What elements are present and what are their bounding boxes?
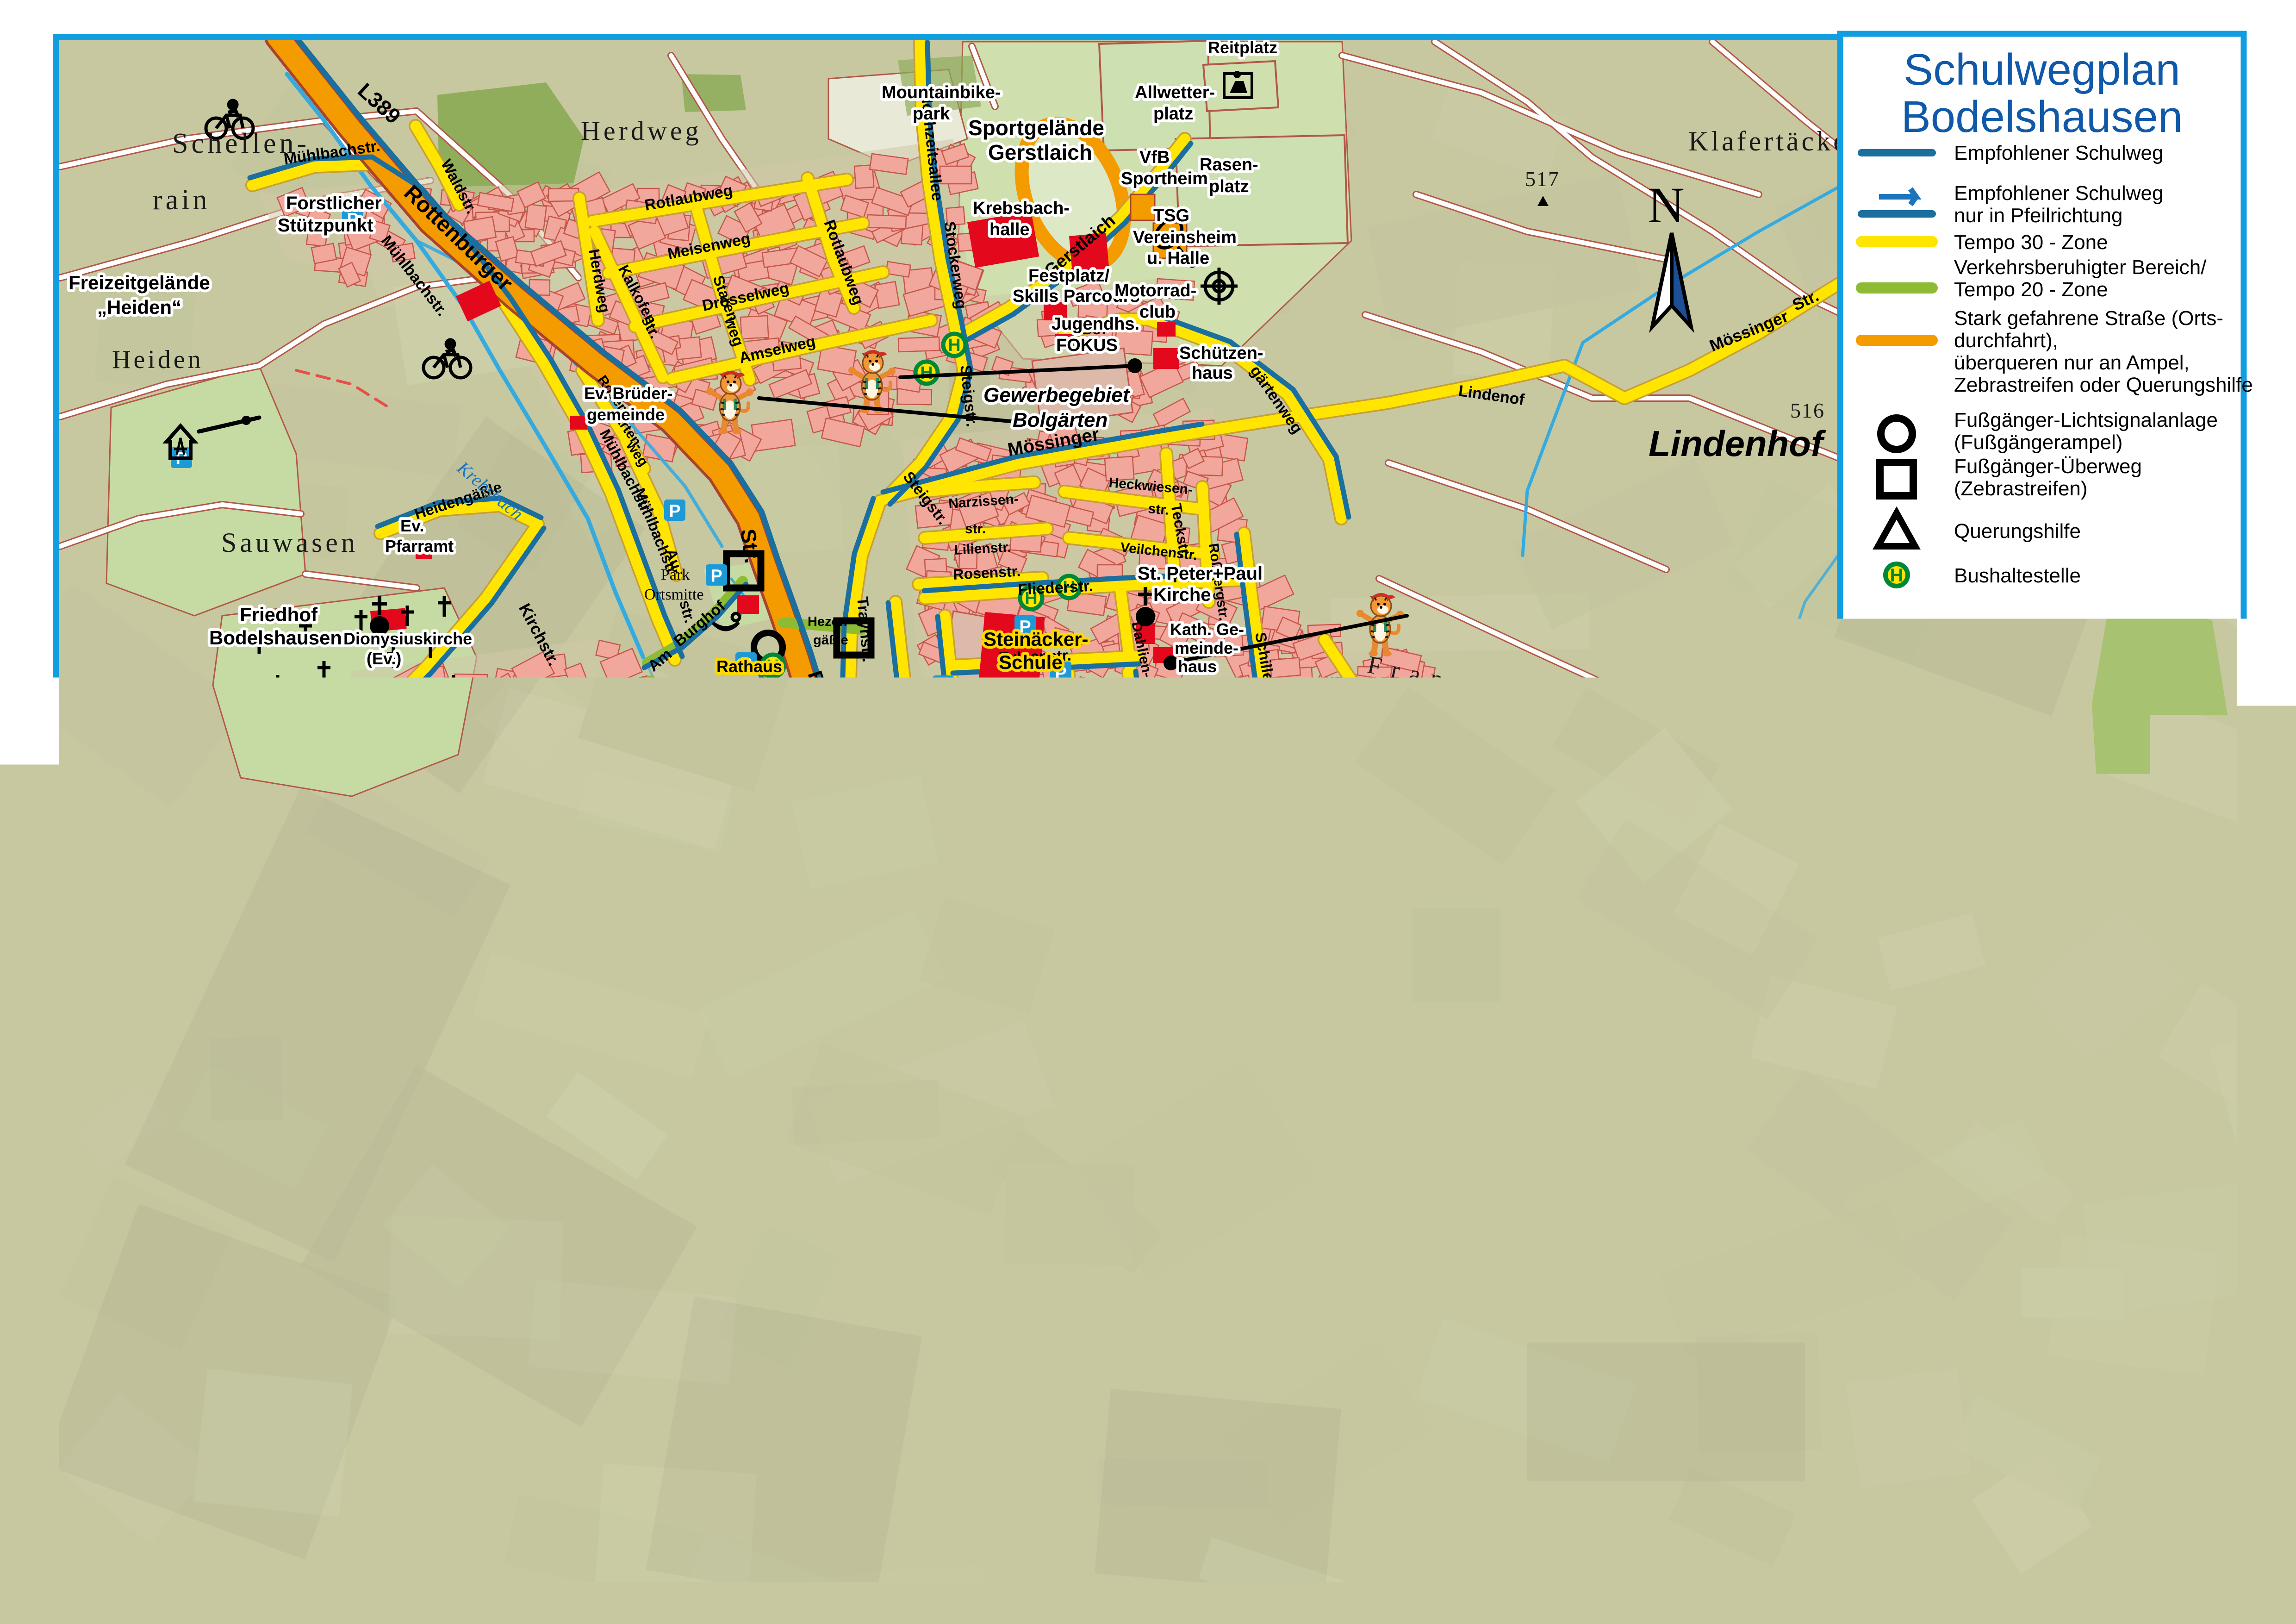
svg-text:Bolgärten: Bolgärten — [1013, 409, 1108, 431]
svg-text:517: 517 — [1525, 167, 1560, 191]
svg-text:Ortsmitte: Ortsmitte — [644, 586, 703, 603]
svg-text:Seelosen: Seelosen — [1579, 1433, 1668, 1456]
svg-text:Geißhalden: Geißhalden — [1628, 988, 1767, 1016]
svg-text:TSG: TSG — [1153, 206, 1189, 225]
svg-text:überqueren nur an Ampel,: überqueren nur an Ampel, — [1954, 351, 2190, 374]
svg-text:Lilienstr.: Lilienstr. — [954, 540, 1012, 558]
svg-text:meinde-: meinde- — [1175, 638, 1238, 657]
svg-text:VfB: VfB — [1139, 148, 1170, 167]
svg-text:haus: haus — [456, 874, 497, 894]
svg-text:Steinäcker-: Steinäcker- — [983, 628, 1088, 650]
svg-text:Stark gefahrene Straße (Orts-: Stark gefahrene Straße (Orts- — [1954, 307, 2223, 330]
svg-text:Musikverein: Musikverein — [890, 754, 992, 774]
svg-text:St. Peter+Paul: St. Peter+Paul — [1138, 563, 1263, 584]
svg-text:Rathaus: Rathaus — [570, 737, 636, 756]
svg-text:„Heiden“: „Heiden“ — [97, 296, 181, 318]
svg-text:Schulwegplan: Schulwegplan — [1904, 45, 2180, 94]
svg-text:Empfohlener Schulweg: Empfohlener Schulweg — [1954, 182, 2163, 205]
svg-text:H: H — [716, 687, 728, 707]
svg-text:Freizeitgelände: Freizeitgelände — [68, 272, 210, 294]
svg-text:Jugendhs.: Jugendhs. — [1052, 314, 1139, 334]
svg-text:H: H — [601, 1355, 613, 1375]
svg-text:Trayhstr.: Trayhstr. — [852, 721, 873, 788]
svg-text:P: P — [1124, 707, 1136, 726]
svg-text:Gemein-: Gemein- — [780, 816, 846, 835]
svg-text:BODELSHAUSEN: BODELSHAUSEN — [1333, 716, 1947, 797]
svg-text:Forstlicher: Forstlicher — [286, 193, 382, 213]
svg-text:halle: halle — [237, 812, 275, 831]
svg-text:wehr: wehr — [843, 1222, 882, 1241]
svg-text:Klafertäcker: Klafertäcker — [1688, 126, 1860, 156]
svg-text:(Ev.-Method.): (Ev.-Method.) — [633, 1208, 743, 1227]
svg-text:Freiw.: Freiw. — [841, 1181, 889, 1200]
svg-text:Heimatgeschichtl.: Heimatgeschichtl. — [1375, 1146, 1526, 1165]
svg-text:P: P — [1010, 736, 1022, 756]
svg-text:Fußgänger-Überweg: Fußgänger-Überweg — [1954, 455, 2142, 478]
svg-text:Rasen-: Rasen- — [1200, 155, 1258, 175]
svg-text:Bodelshausen: Bodelshausen — [1901, 92, 2183, 142]
svg-text:Sauwasen: Sauwasen — [221, 527, 358, 558]
svg-text:H: H — [948, 336, 960, 355]
svg-text:Nelkenstr.: Nelkenstr. — [1008, 705, 1082, 725]
svg-text:str.: str. — [965, 521, 986, 537]
svg-text:str.: str. — [1147, 501, 1170, 518]
svg-text:Linke Au: Linke Au — [513, 706, 653, 739]
svg-text:Birkenweg: Birkenweg — [715, 1104, 804, 1124]
svg-text:P: P — [2198, 1307, 2209, 1327]
svg-text:Friedenskirche: Friedenskirche — [626, 1187, 751, 1207]
svg-text:Hartwiesen: Hartwiesen — [1662, 828, 1808, 857]
svg-text:Gewerbe-: Gewerbe- — [1954, 1517, 2042, 1539]
svg-text:Gerstlaich: Gerstlaich — [988, 140, 1092, 164]
svg-text:Hirschen: Hirschen — [326, 1236, 449, 1266]
svg-text:(Ev.): (Ev.) — [367, 649, 401, 668]
svg-text:Vereinsheim: Vereinsheim — [1133, 228, 1237, 247]
svg-text:DRK: DRK — [906, 1225, 946, 1246]
svg-text:gebiet: gebiet — [1972, 1542, 2031, 1563]
svg-text:durchfahrt),: durchfahrt), — [1954, 329, 2058, 352]
svg-text:Schellen-: Schellen- — [172, 128, 310, 159]
svg-text:Wohnhaus für: Wohnhaus für — [522, 1104, 640, 1124]
svg-text:i: i — [1984, 1154, 1990, 1178]
svg-text:Tempo 20 - Zone: Tempo 20 - Zone — [1954, 278, 2108, 301]
svg-text:Kiga: Kiga — [1255, 1111, 1292, 1130]
svg-text:Bodelshausen: Bodelshausen — [209, 627, 342, 649]
svg-text:(Zebrastreifen): (Zebrastreifen) — [1954, 477, 2088, 500]
svg-text:Ev.: Ev. — [400, 516, 424, 535]
svg-text:Gewerbegebiet: Gewerbegebiet — [983, 384, 1131, 406]
svg-text:Senioren-: Senioren- — [443, 854, 524, 874]
svg-text:Sportheim: Sportheim — [1121, 169, 1208, 188]
svg-text:Bahnh.: Bahnh. — [2175, 1343, 2228, 1361]
svg-text:N: N — [1648, 177, 1684, 233]
svg-text:Empfohlener Schulweg: Empfohlener Schulweg — [1954, 142, 2163, 164]
svg-text:Kath. Ge-: Kath. Ge- — [1170, 620, 1244, 639]
svg-text:Herdweg: Herdweg — [581, 116, 702, 146]
svg-text:H: H — [1890, 565, 1904, 586]
svg-text:Festplatz/: Festplatz/ — [1028, 266, 1110, 286]
svg-text:club: club — [1139, 302, 1176, 322]
svg-text:hofstr.: hofstr. — [1252, 1150, 1303, 1169]
svg-text:Behinderte: Behinderte — [533, 1124, 625, 1144]
svg-text:Bahn-: Bahn- — [1251, 1131, 1298, 1149]
svg-text:Park: Park — [661, 566, 690, 583]
svg-text:P: P — [669, 502, 680, 521]
svg-text:haus: haus — [1178, 657, 1217, 676]
svg-text:wiese: wiese — [1806, 1166, 1859, 1189]
svg-text:str.: str. — [1154, 880, 1173, 905]
svg-text:516: 516 — [1790, 399, 1825, 422]
svg-text:Allwetter-: Allwetter- — [1135, 83, 1215, 102]
svg-text:L389: L389 — [1523, 1274, 1570, 1299]
svg-text:H: H — [1053, 990, 1066, 1009]
svg-text:Bodels-: Bodels- — [2170, 1363, 2228, 1381]
svg-text:bühl: bühl — [1032, 1338, 1062, 1354]
svg-text:H: H — [654, 885, 667, 905]
svg-text:P: P — [710, 567, 722, 586]
svg-text:Friedrich-: Friedrich- — [1829, 1256, 1895, 1273]
svg-text:Bushaltestelle: Bushaltestelle — [1954, 564, 2081, 587]
svg-text:Fußgänger-Lichtsignalanlage: Fußgänger-Lichtsignalanlage — [1954, 409, 2218, 431]
svg-text:str.: str. — [979, 895, 998, 920]
svg-text:Stützpunkt: Stützpunkt — [278, 215, 373, 236]
svg-text:Rosenstr.: Rosenstr. — [952, 562, 1021, 583]
svg-text:Heiden: Heiden — [112, 345, 204, 374]
svg-text:Forum: Forum — [759, 750, 814, 769]
svg-text:Butzensee: Butzensee — [2133, 1200, 2210, 1221]
svg-text:KBF: KBF — [570, 1083, 606, 1102]
svg-text:Blochings-: Blochings- — [209, 1026, 355, 1056]
svg-text:P: P — [2226, 1252, 2237, 1271]
svg-text:Ev. Brüder-: Ev. Brüder- — [584, 384, 672, 403]
svg-text:Friedhof: Friedhof — [240, 604, 318, 625]
svg-text:Zebrastreifen oder Querungshil: Zebrastreifen oder Querungshilfe — [1954, 374, 2253, 396]
svg-text:Kirche: Kirche — [1153, 585, 1211, 605]
svg-text:P: P — [635, 1543, 647, 1563]
svg-text:Kindergarten: Kindergarten — [1235, 777, 1338, 796]
svg-text:Lindenhof: Lindenhof — [1649, 423, 1826, 464]
svg-text:Schule: Schule — [999, 651, 1063, 673]
svg-text:Str.: Str. — [736, 527, 765, 565]
svg-text:platz: platz — [1209, 177, 1249, 196]
svg-text:park: park — [913, 104, 950, 124]
svg-text:P: P — [876, 710, 887, 730]
svg-text:Querungshilfe: Querungshilfe — [1954, 520, 2081, 543]
svg-text:Hezen-: Hezen- — [808, 614, 852, 629]
svg-text:(Fußgängerampel): (Fußgängerampel) — [1954, 431, 2122, 454]
svg-text:nur in Pfeilrichtung: nur in Pfeilrichtung — [1954, 204, 2122, 227]
svg-text:Feuer-: Feuer- — [835, 1201, 886, 1220]
svg-text:Sportgelände: Sportgelände — [968, 116, 1104, 140]
svg-text:Reitplatz: Reitplatz — [1208, 38, 1277, 57]
svg-text:Dörnlestr.: Dörnlestr. — [465, 1341, 532, 1357]
svg-text:u. Halle: u. Halle — [1147, 249, 1209, 268]
svg-text:FOKUS: FOKUS — [1056, 336, 1118, 355]
svg-text:Bei der: Bei der — [1790, 1114, 1859, 1137]
svg-text:H: H — [1358, 1206, 1370, 1225]
svg-text:P: P — [937, 678, 949, 697]
svg-text:Schäfer: Schäfer — [439, 895, 504, 914]
svg-text:A: A — [467, 803, 487, 835]
svg-text:gemeinde: gemeinde — [587, 405, 665, 424]
svg-text:H: H — [364, 1539, 376, 1559]
svg-text:halle: halle — [989, 220, 1030, 239]
svg-text:rain: rain — [153, 184, 210, 216]
svg-text:Str.: Str. — [1092, 1146, 1116, 1163]
svg-text:dehaus: dehaus — [783, 836, 841, 855]
svg-text:Gewerbe-: Gewerbe- — [1559, 1384, 1652, 1406]
svg-text:Die HeiSa-: Die HeiSa- — [1375, 1124, 1462, 1144]
svg-text:H: H — [920, 363, 933, 383]
svg-text:Schützen-: Schützen- — [1179, 344, 1263, 363]
svg-text:m: m — [1343, 1162, 1362, 1186]
svg-text:haus: haus — [1192, 363, 1233, 383]
svg-text:Tempo 30 - Zone: Tempo 30 - Zone — [1954, 231, 2108, 254]
svg-text:Verkehrsberuhigter Bereich/: Verkehrsberuhigter Bereich/ — [1954, 256, 2207, 279]
svg-text:hausen: hausen — [2172, 1383, 2227, 1401]
svg-text:Aussegungs-: Aussegungs- — [207, 791, 313, 810]
svg-text:Schulwegtiger: Schulwegtiger — [1954, 652, 2082, 675]
svg-text:gebiet: gebiet — [1572, 1409, 1634, 1431]
svg-text:Rathaus: Rathaus — [716, 657, 782, 676]
svg-text:Achalmstr.: Achalmstr. — [1244, 797, 1329, 816]
svg-text:Pfarramt: Pfarramt — [385, 537, 454, 556]
svg-text:Daimlerstr.: Daimlerstr. — [1471, 1515, 1557, 1534]
svg-text:Sammlung: Sammlung — [1375, 1166, 1465, 1186]
svg-text:Mountainbike-: Mountainbike- — [882, 83, 1001, 102]
svg-text:gäßle: gäßle — [813, 633, 848, 648]
svg-text:Dionysiuskirche: Dionysiuskirche — [343, 629, 472, 648]
svg-text:P: P — [854, 682, 865, 702]
svg-text:Krebsbach-: Krebsbach- — [973, 199, 1070, 218]
svg-text:H: H — [619, 788, 632, 807]
svg-text:platz: platz — [1153, 104, 1194, 124]
svg-text:Motorrad-: Motorrad- — [1114, 281, 1196, 300]
svg-text:Hascherles-: Hascherles- — [1773, 1140, 1885, 1163]
svg-text:Ev.: Ev. — [798, 796, 822, 815]
svg-text:Kinderhaus: Kinderhaus — [709, 1083, 806, 1102]
svg-text:520: 520 — [1935, 963, 1970, 987]
svg-text:H: H — [1037, 962, 1050, 981]
svg-text:Kindergarten: Kindergarten — [1463, 1495, 1567, 1514]
